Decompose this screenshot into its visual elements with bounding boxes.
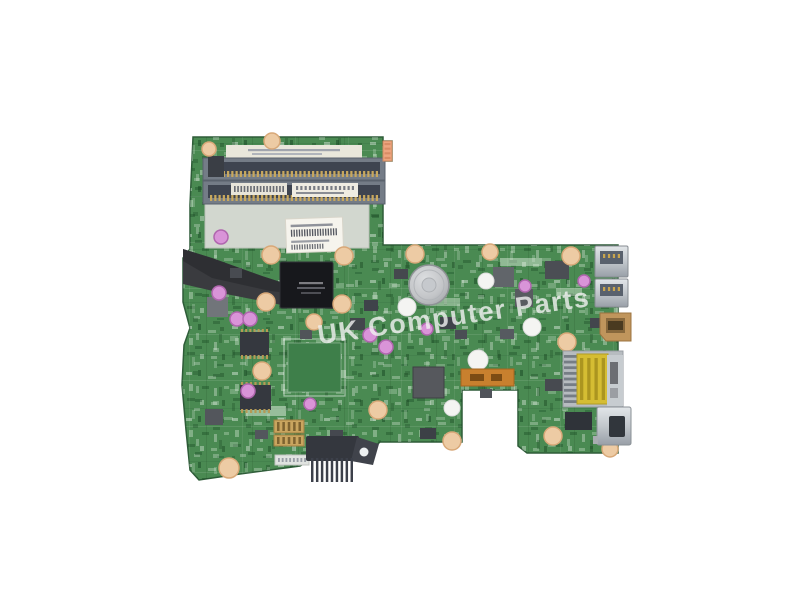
ram-label-top-line — [252, 153, 322, 155]
sd-card-stripes-tooth — [602, 358, 605, 400]
ram-slot-1-pins-tooth — [270, 171, 272, 177]
ram-slot-2-label-b-marks-tooth — [343, 186, 345, 190]
ram-slot-2-label-a-barcode-tooth — [279, 186, 281, 192]
ram-slot-2-label-b-marks-tooth — [300, 186, 302, 190]
sd-card-reader-contacts-tooth — [564, 366, 577, 369]
ram-slot-1-pins-tooth — [291, 171, 293, 177]
white-header-pins-tooth — [304, 458, 306, 462]
ic-chip — [394, 269, 408, 279]
usb-port-2-contacts-tooth — [603, 287, 605, 291]
ram-slot-2-label-a-barcode-tooth — [257, 186, 259, 192]
ic-pins-tooth — [263, 409, 265, 413]
ic-pins-tooth — [250, 409, 252, 413]
sd-card-reader-contacts-tooth — [564, 389, 577, 392]
ram-slot-2-pins-tooth — [223, 195, 225, 201]
ram-slot-1-channel — [208, 162, 380, 174]
ram-slot-2-pins-tooth — [359, 195, 361, 201]
mount-pad — [558, 333, 576, 351]
usb-port-2-contacts-tooth — [618, 287, 620, 291]
standoff — [468, 350, 488, 370]
part-sticker-barcode-tooth — [294, 245, 295, 250]
ic-pins-tooth — [268, 409, 270, 413]
orange-flex-mark — [470, 374, 484, 381]
white-header-pins-tooth — [297, 458, 299, 462]
part-sticker-barcode-tooth — [296, 230, 298, 237]
gold-connector-pins-tooth — [277, 437, 280, 444]
ic-chip — [364, 300, 378, 311]
sd-card-reader-contacts-tooth — [564, 355, 577, 358]
cpu-marking — [299, 282, 323, 284]
hdmi-port-slot — [608, 321, 623, 330]
ic-chip — [493, 267, 514, 287]
battery-connector-pins-tooth — [351, 458, 353, 482]
gold-connector-pins-tooth — [277, 422, 280, 431]
white-header-pins-tooth — [289, 458, 291, 462]
ram-slot-2-label-b-marks-tooth — [317, 186, 319, 190]
polymer-capacitor — [243, 312, 257, 326]
ram-slot-2-pins-tooth — [367, 195, 369, 201]
mount-pad — [333, 295, 351, 313]
ram-slot-1-pins-tooth — [312, 171, 314, 177]
ram-slot-1-pins-tooth — [274, 171, 276, 177]
ram-slot-2-label-a-barcode-tooth — [260, 186, 262, 192]
ram-slot-1-pins-tooth — [248, 171, 250, 177]
mount-pad — [406, 245, 424, 263]
ic-chip — [545, 379, 563, 391]
ram-slot-2-pins-tooth — [376, 195, 378, 201]
mount-pad — [544, 427, 562, 445]
ram-slot-1-pins-tooth — [316, 171, 318, 177]
ram-slot-1-pins-tooth — [338, 171, 340, 177]
gold-connector-pins-tooth — [293, 437, 296, 444]
mount-pad — [482, 244, 498, 260]
ram-slot-2-label-b-marks-tooth — [352, 186, 354, 190]
gold-connector-pins-tooth — [282, 437, 285, 444]
ram-slot-2-pins-tooth — [282, 195, 284, 201]
mount-pad — [335, 247, 353, 265]
part-sticker-barcode-tooth — [293, 230, 295, 237]
ram-slot-1-pins-tooth — [372, 171, 374, 177]
ram-slot-1-pins-tooth — [308, 171, 310, 177]
part-sticker-barcode-tooth — [325, 229, 327, 236]
battery-connector-hole — [360, 448, 369, 457]
orange-flex-mark — [491, 374, 502, 381]
ram-slot-2-label-b-marks-tooth — [335, 186, 337, 190]
ic-chip — [255, 430, 268, 439]
ram-slot-2-label-b-marks-tooth — [326, 186, 328, 190]
orange-edge-tab-lines-tooth — [385, 157, 391, 159]
ram-slot-2-pins-tooth — [219, 195, 221, 201]
ic-chip — [208, 156, 224, 177]
ram-slot-2-label-b-marks-tooth — [322, 186, 324, 190]
sd-card-reader-contacts — [564, 355, 577, 403]
ram-slot-2-label-b-marks-tooth — [339, 186, 341, 190]
sd-card-reader-contacts-tooth — [564, 361, 577, 364]
ram-slot-1-pins-tooth — [253, 171, 255, 177]
polymer-capacitor — [230, 312, 244, 326]
ram-slot-2-pins-tooth — [372, 195, 374, 201]
gold-connector-pins-tooth — [298, 422, 301, 431]
orange-edge-tab-lines-tooth — [385, 148, 391, 150]
ram-slot-2-pins-tooth — [248, 195, 250, 201]
ic-pins-tooth — [266, 355, 268, 359]
ram-slot-1-pins-tooth — [376, 171, 378, 177]
ram-slot-2-pins-tooth — [210, 195, 212, 201]
ram-slot-1-pins-tooth — [282, 171, 284, 177]
ic-pins-tooth — [245, 355, 247, 359]
ram-slot-1-pins-tooth — [295, 171, 297, 177]
ram-slot-1-pins-tooth — [359, 171, 361, 177]
usb-port-2-contacts-tooth — [608, 287, 610, 291]
product-photo-stage: UK Computer Parts — [0, 0, 800, 616]
usb-port-2-contacts-tooth — [613, 287, 615, 291]
ram-slot-1-pins-tooth — [333, 171, 335, 177]
battery-connector-pins-tooth — [336, 458, 338, 482]
sd-card-label — [610, 388, 618, 398]
silkscreen-block — [500, 258, 542, 266]
cpu-marking — [297, 287, 325, 289]
ram-slot-2-label-a-barcode-tooth — [247, 186, 249, 192]
part-sticker-barcode-tooth — [304, 244, 305, 249]
ram-slot-1-pins-tooth — [321, 171, 323, 177]
standoff — [478, 273, 494, 289]
part-sticker-barcode-tooth — [307, 244, 308, 249]
ram-slot-1-pins-tooth — [355, 171, 357, 177]
part-sticker-barcode-tooth — [322, 229, 324, 236]
ic-chip — [480, 389, 492, 398]
mount-pad — [443, 432, 461, 450]
part-sticker-barcode-tooth — [302, 244, 303, 249]
ram-slot-2-label-a-barcode-tooth — [234, 186, 236, 192]
ram-slot-1-pins-tooth — [342, 171, 344, 177]
ram-slot-1-pins-tooth — [257, 171, 259, 177]
ram-slot-2-pins-tooth — [261, 195, 263, 201]
part-sticker-barcode-tooth — [299, 244, 300, 249]
ic-pins-tooth — [254, 409, 256, 413]
ram-slot-1-pins-tooth — [278, 171, 280, 177]
ram-slot-2-pins-tooth — [363, 195, 365, 201]
ram-slot-2-label-b-marks-tooth — [296, 186, 298, 190]
usb-port-1-contacts-tooth — [613, 254, 615, 258]
usb-port-1-contacts-tooth — [608, 254, 610, 258]
dc-jack-pin — [593, 436, 598, 444]
ram-slot-2-pins-tooth — [227, 195, 229, 201]
ram-slot-2-label-a-barcode-tooth — [269, 186, 271, 192]
part-sticker-barcode-tooth — [291, 245, 292, 250]
ram-slot-2-pins-tooth — [274, 195, 276, 201]
mount-pad — [369, 401, 387, 419]
battery-connector-pins-tooth — [311, 458, 313, 482]
ic-pins-tooth — [262, 355, 264, 359]
orange-edge-tab-lines-tooth — [385, 143, 391, 145]
ram-slot-2-pins-tooth — [257, 195, 259, 201]
ram-slot-1-pins-tooth — [261, 171, 263, 177]
ram-slot-1-pins-tooth — [367, 171, 369, 177]
part-sticker-barcode-tooth — [320, 229, 322, 236]
sd-card-stripes-tooth — [580, 358, 583, 400]
ram-slot-2-label-a-barcode-tooth — [263, 186, 265, 192]
mount-pad — [562, 247, 580, 265]
ram-slot-1-pins-tooth — [227, 171, 229, 177]
polymer-capacitor — [379, 340, 393, 354]
ram-slot-2-label-a-barcode-tooth — [237, 186, 239, 192]
part-sticker-barcode-tooth — [330, 228, 332, 235]
mount-pad — [219, 458, 239, 478]
ic-pins-tooth — [241, 409, 243, 413]
battery-connector-pins-tooth — [321, 458, 323, 482]
white-header-pins-tooth — [293, 458, 295, 462]
ram-slot-2-label-a-barcode-tooth — [276, 186, 278, 192]
ram-slot-2-label-b-marks-tooth — [313, 186, 315, 190]
ram-slot-1-pins-tooth — [329, 171, 331, 177]
polymer-capacitor — [214, 230, 228, 244]
gold-connector-pins-tooth — [282, 422, 285, 431]
ram-slot-2-pins-tooth — [240, 195, 242, 201]
orange-flex-cable — [461, 369, 514, 386]
ram-slot-2-label-a-barcode-tooth — [244, 186, 246, 192]
sd-card-reader-contacts-tooth — [564, 400, 577, 403]
part-sticker-barcode-tooth — [299, 229, 301, 236]
ic-pins-tooth — [253, 355, 255, 359]
gold-connector-pins-tooth — [288, 437, 291, 444]
ic-chip — [500, 329, 514, 339]
part-sticker-barcode-tooth — [322, 244, 323, 249]
cpu-chip — [280, 262, 333, 308]
usb-port-1-contacts-tooth — [603, 254, 605, 258]
ram-slot-2-label-b-marks-tooth — [305, 186, 307, 190]
part-sticker-barcode-tooth — [309, 244, 310, 249]
mount-pad — [253, 362, 271, 380]
ram-slot-2-label-a-barcode-tooth — [253, 186, 255, 192]
usb-port-1-contacts-tooth — [618, 254, 620, 258]
ic-pins-tooth — [241, 355, 243, 359]
ram-slot-1-pins-tooth — [299, 171, 301, 177]
bga-pad — [288, 343, 341, 392]
white-header-connector — [275, 455, 309, 465]
ram-slot-2-label-b-marks-tooth — [348, 186, 350, 190]
ram-slot-1-pins-tooth — [244, 171, 246, 177]
ram-slot-2-label-b-marks-tooth — [330, 186, 332, 190]
ic-chip — [230, 268, 242, 278]
battery-connector-pins-tooth — [316, 458, 318, 482]
part-sticker-barcode-tooth — [319, 244, 320, 249]
sd-card-reader-contacts-tooth — [564, 383, 577, 386]
gold-connector-pins-tooth — [293, 422, 296, 431]
battery-connector-pins — [311, 458, 353, 482]
ram-slot-2-label-b-marks-tooth — [309, 186, 311, 190]
orange-edge-tab-lines-tooth — [385, 152, 391, 154]
mount-pad — [202, 142, 216, 156]
battery-connector-pins-tooth — [326, 458, 328, 482]
ram-slot-2-label-a-barcode-tooth — [282, 186, 284, 192]
ram-slot-1-pins-tooth — [304, 171, 306, 177]
ram-slot-1-pins-tooth — [325, 171, 327, 177]
ram-slot-1-pins-tooth — [236, 171, 238, 177]
part-sticker-barcode-tooth — [317, 229, 319, 236]
battery-connector-pins-tooth — [346, 458, 348, 482]
gold-connector-pins-tooth — [298, 437, 301, 444]
ic-pins-tooth — [245, 409, 247, 413]
sd-card-stripes-tooth — [594, 358, 597, 400]
ic-chip — [300, 330, 312, 339]
motherboard-photo: UK Computer Parts — [0, 0, 800, 616]
part-sticker-barcode-tooth — [307, 229, 309, 236]
ram-slot-2-pins-tooth — [253, 195, 255, 201]
ic-chip — [413, 367, 444, 398]
sd-card-reader-contacts-tooth — [564, 372, 577, 375]
polymer-capacitor — [241, 384, 255, 398]
ic-chip — [420, 428, 436, 439]
ram-slot-1-pins-tooth — [363, 171, 365, 177]
ram-slot-2-pins-tooth — [231, 195, 233, 201]
part-sticker-barcode-tooth — [312, 244, 313, 249]
polymer-capacitor — [304, 398, 316, 410]
ram-slot-2-label-a-barcode-tooth — [273, 186, 275, 192]
ram-slot-2-pins-tooth — [278, 195, 280, 201]
dc-jack-hole — [609, 416, 625, 437]
white-header-pins-tooth — [282, 458, 284, 462]
sd-card-label — [610, 362, 618, 384]
battery-connector-pins-tooth — [341, 458, 343, 482]
ic-pins-tooth — [259, 409, 261, 413]
white-header-pins-tooth — [278, 458, 280, 462]
ic-pins-tooth — [258, 355, 260, 359]
part-sticker-barcode-tooth — [314, 244, 315, 249]
ram-slot-2-label-a-barcode-tooth — [266, 186, 268, 192]
ram-slot-2-pins-tooth — [236, 195, 238, 201]
ram-slot-1-pins-tooth — [265, 171, 267, 177]
sd-card-stripes-tooth — [587, 358, 590, 400]
ic-chip — [240, 332, 269, 356]
part-sticker-barcode-tooth — [317, 244, 318, 249]
ram-slot-1-pins-tooth — [231, 171, 233, 177]
white-header-pins-tooth — [285, 458, 287, 462]
white-header-pins-tooth — [300, 458, 302, 462]
part-sticker-barcode-tooth — [314, 229, 316, 236]
ic-pins-tooth — [249, 355, 251, 359]
part-sticker-barcode-tooth — [335, 228, 337, 235]
ram-slot-1-pins-tooth — [240, 171, 242, 177]
ram-slot-1-pins-tooth — [287, 171, 289, 177]
standoff — [444, 400, 460, 416]
part-sticker-barcode-tooth — [328, 228, 330, 235]
ram-slot-2-pins-tooth — [265, 195, 267, 201]
ic-chip — [565, 412, 592, 430]
battery-connector-body — [306, 436, 359, 461]
ram-slot-2-label-a-barcode-tooth — [240, 186, 242, 192]
ic-chip — [455, 330, 467, 339]
ram-label-top-line — [248, 149, 340, 151]
ram-slot-2-label-b-line — [296, 192, 344, 194]
sd-card-reader-contacts-tooth — [564, 395, 577, 398]
part-sticker-barcode-tooth — [296, 245, 297, 250]
coin-battery-center — [422, 278, 436, 292]
ram-slot-2-pins-tooth — [287, 195, 289, 201]
ram-slot-2-pins-tooth — [214, 195, 216, 201]
ram-slot-2-pins-tooth — [270, 195, 272, 201]
part-sticker-barcode-tooth — [301, 229, 303, 236]
ram-slot-2-label-a — [231, 183, 287, 195]
part-sticker-barcode-tooth — [291, 230, 293, 237]
mount-pad — [257, 293, 275, 311]
battery-connector-pins-tooth — [331, 458, 333, 482]
mount-pad — [262, 246, 280, 264]
mount-pad — [264, 133, 280, 149]
gold-connector-pins-tooth — [288, 422, 291, 431]
ram-label-top — [226, 145, 362, 158]
ram-slot-1-pins-tooth — [350, 171, 352, 177]
polymer-capacitor — [212, 286, 226, 300]
cpu-marking — [301, 292, 321, 294]
ram-slot-1-pins-tooth — [346, 171, 348, 177]
sd-card-reader-contacts-tooth — [564, 378, 577, 381]
part-sticker-barcode-tooth — [304, 229, 306, 236]
part-sticker-barcode-tooth — [309, 229, 311, 236]
ram-slot-2-label-a-barcode-tooth — [250, 186, 252, 192]
ic-chip — [205, 409, 223, 425]
ram-slot-2-pins-tooth — [244, 195, 246, 201]
part-sticker-barcode-tooth — [312, 229, 314, 236]
part-sticker-barcode-tooth — [333, 228, 335, 235]
